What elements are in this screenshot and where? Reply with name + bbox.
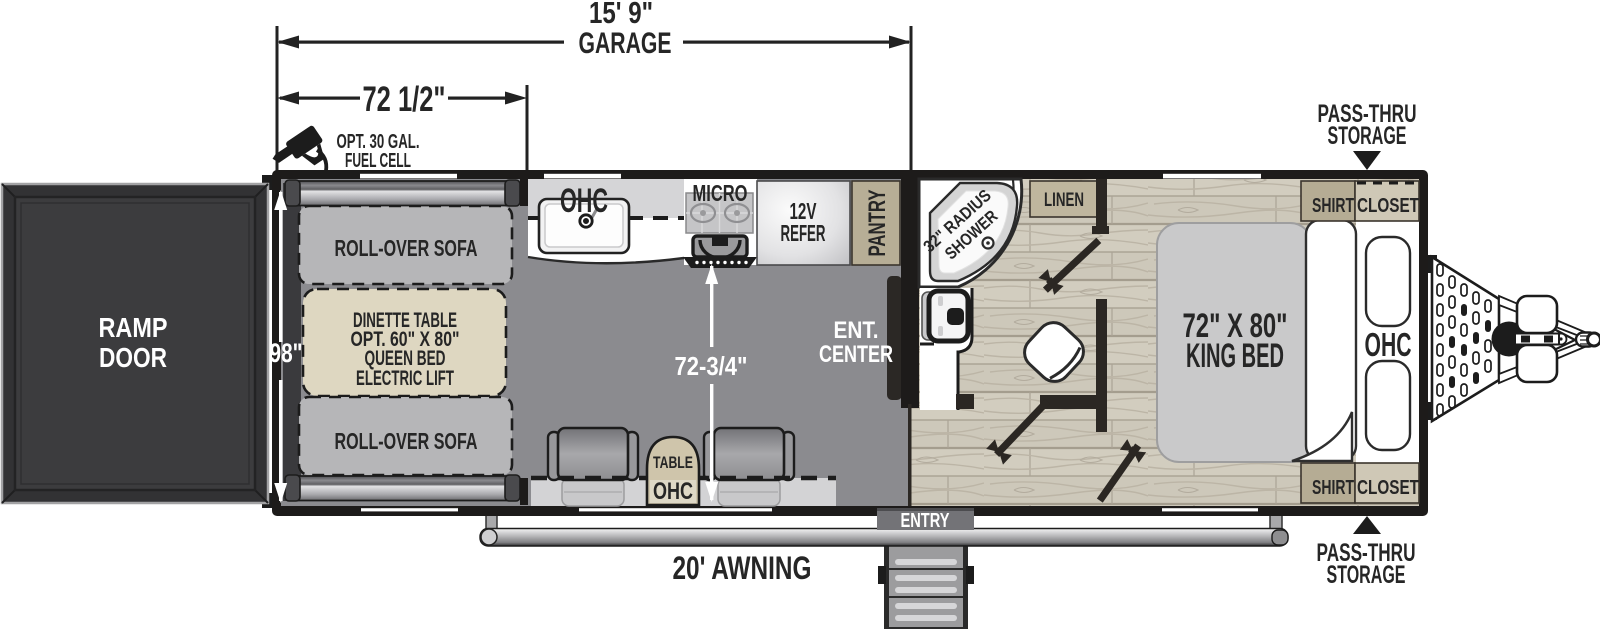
svg-text:CLOSET: CLOSET <box>1357 477 1419 499</box>
svg-text:STORAGE: STORAGE <box>1328 122 1407 150</box>
svg-text:ROLL-OVER SOFA: ROLL-OVER SOFA <box>335 428 478 454</box>
svg-text:98": 98" <box>270 338 303 368</box>
svg-text:CLOSET: CLOSET <box>1357 195 1419 217</box>
svg-text:15' 9": 15' 9" <box>589 0 653 30</box>
svg-text:SHIRT: SHIRT <box>1312 477 1354 499</box>
svg-text:72-3/4": 72-3/4" <box>675 351 748 381</box>
svg-text:ROLL-OVER SOFA: ROLL-OVER SOFA <box>335 235 478 261</box>
svg-text:ENTRY: ENTRY <box>901 510 950 532</box>
svg-text:OHC: OHC <box>560 182 608 220</box>
svg-text:TABLE: TABLE <box>653 453 693 472</box>
svg-text:OHC: OHC <box>1365 326 1412 363</box>
svg-text:20' AWNING: 20' AWNING <box>673 550 812 586</box>
svg-text:SHIRT: SHIRT <box>1312 195 1354 217</box>
svg-text:MICRO: MICRO <box>693 180 748 206</box>
svg-text:72 1/2": 72 1/2" <box>363 80 446 119</box>
svg-text:GARAGE: GARAGE <box>579 27 672 60</box>
svg-text:CENTER: CENTER <box>819 341 893 368</box>
svg-text:DOOR: DOOR <box>99 342 167 373</box>
svg-text:KING BED: KING BED <box>1186 337 1284 375</box>
svg-text:RAMP: RAMP <box>99 312 168 343</box>
svg-text:OHC: OHC <box>653 478 693 505</box>
svg-text:LINEN: LINEN <box>1044 190 1084 211</box>
svg-text:ELECTRIC LIFT: ELECTRIC LIFT <box>356 367 454 390</box>
svg-text:PANTRY: PANTRY <box>864 190 891 257</box>
svg-text:REFER: REFER <box>781 220 826 246</box>
svg-text:ENT.: ENT. <box>834 317 879 344</box>
svg-text:FUEL CELL: FUEL CELL <box>345 150 411 172</box>
svg-text:STORAGE: STORAGE <box>1327 561 1406 589</box>
